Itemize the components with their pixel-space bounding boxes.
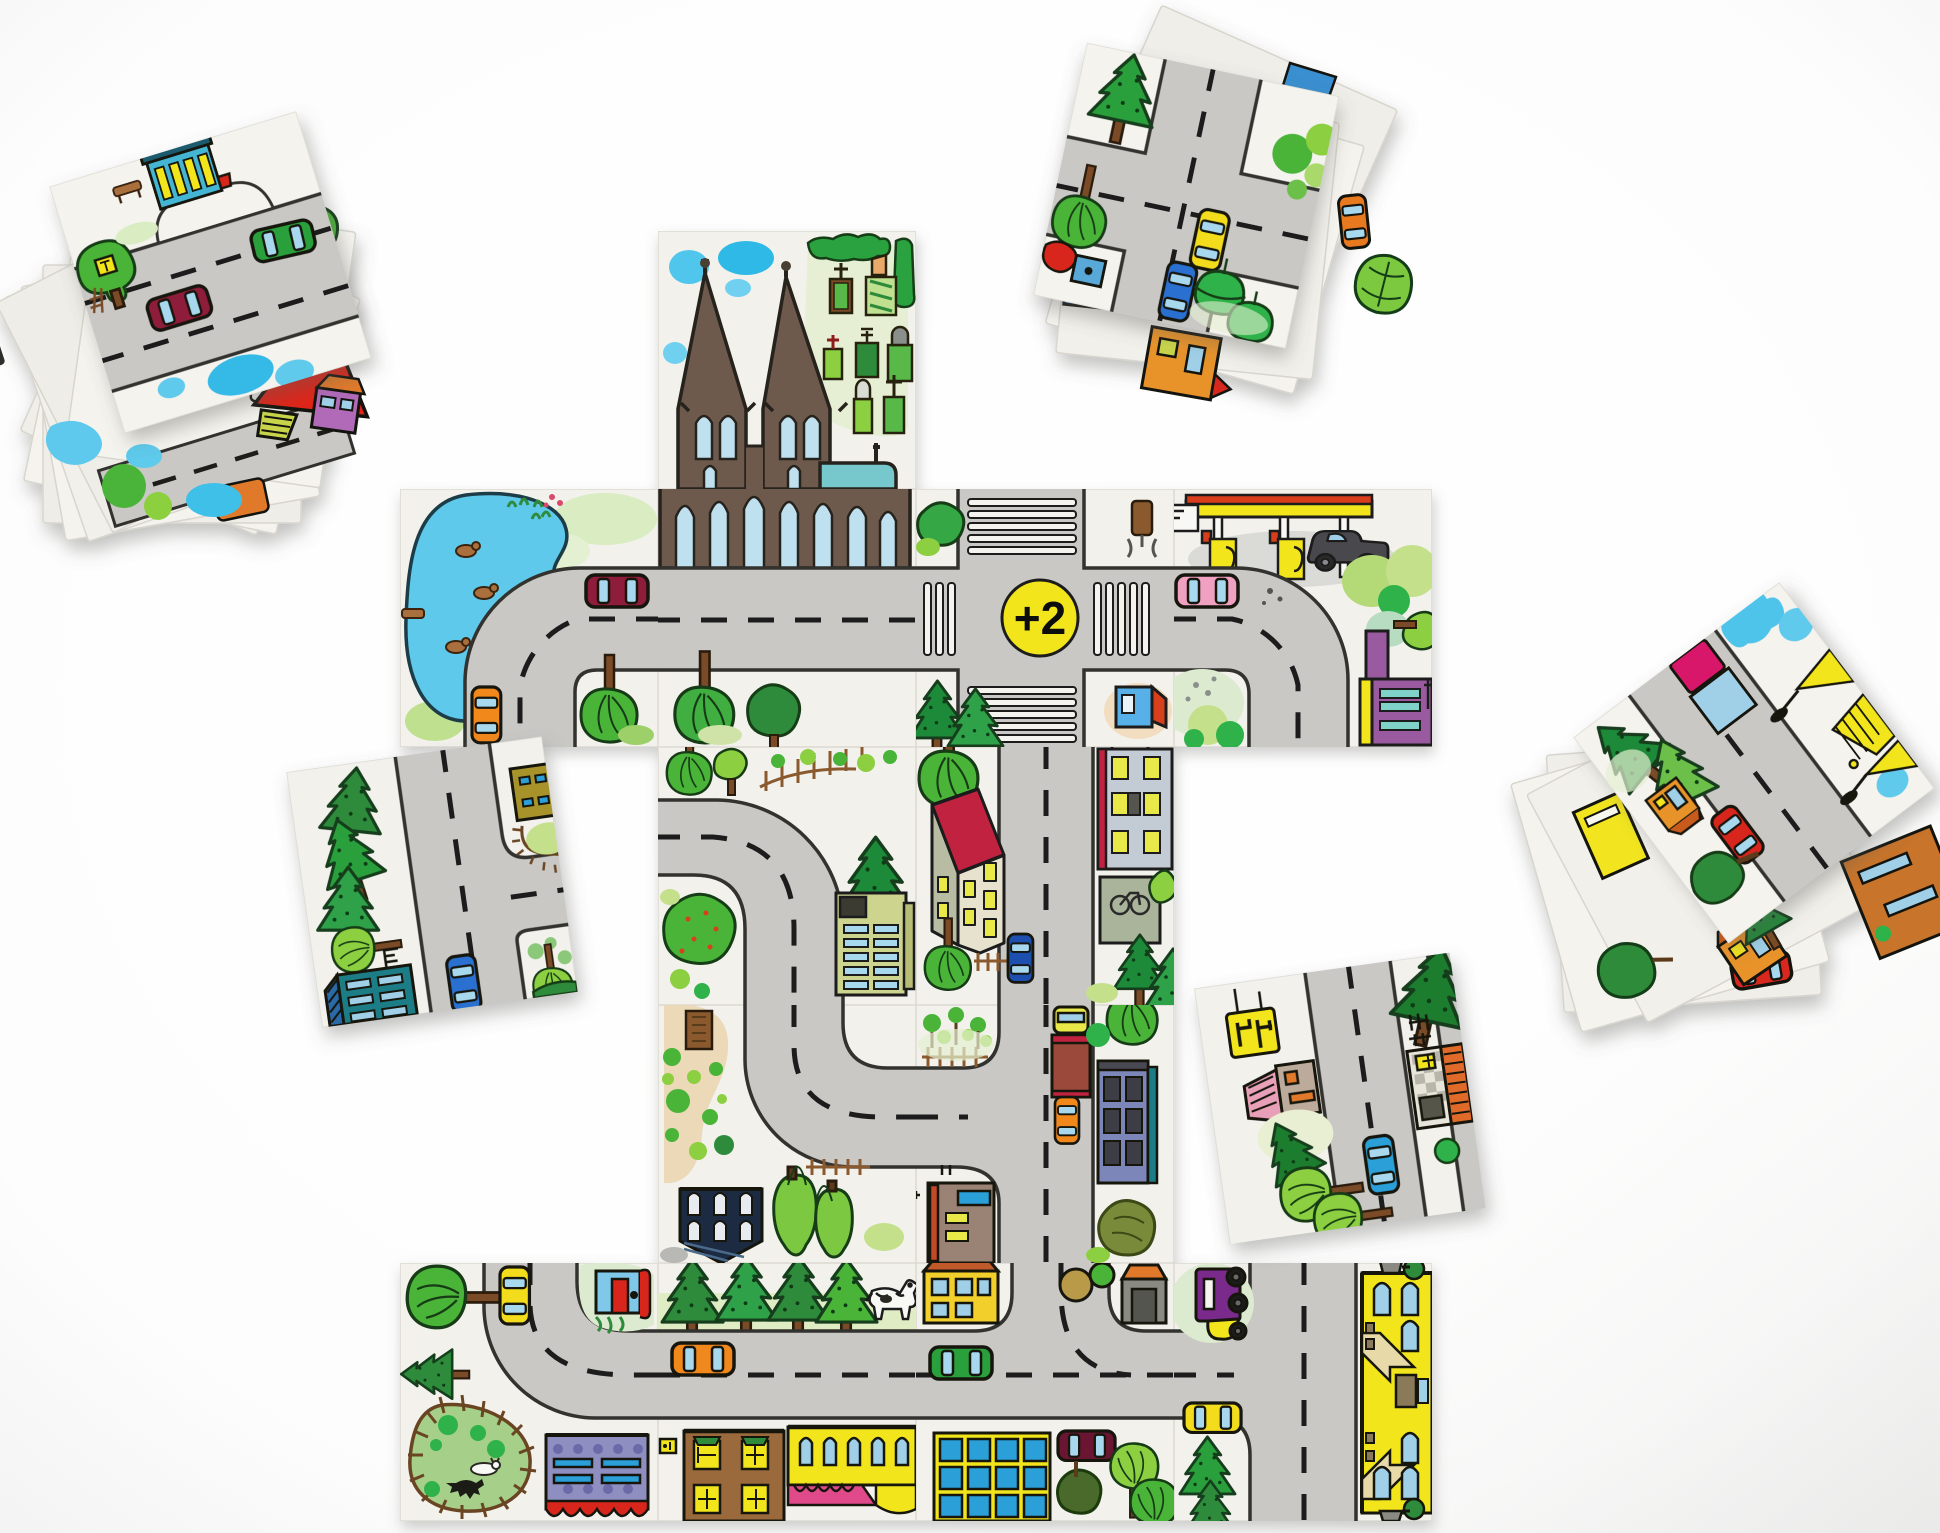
- svg-text:+2: +2: [1014, 592, 1066, 644]
